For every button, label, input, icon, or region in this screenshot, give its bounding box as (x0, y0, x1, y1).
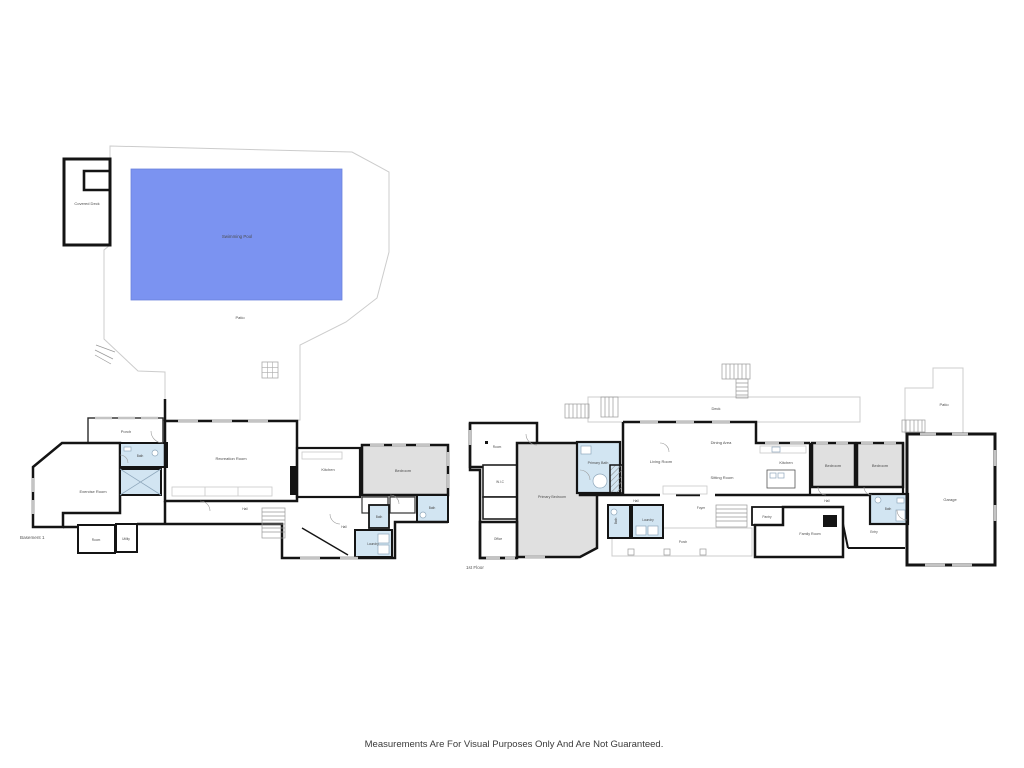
room-ff-label: Room (493, 445, 502, 449)
kitchen-ff-label: Kitchen (779, 460, 792, 465)
kitchen-fixtures-ff (760, 446, 806, 488)
basement-plan: Porch Bath Exercise Room Recreation Room… (20, 399, 448, 558)
foyer-label: Foyer (697, 506, 706, 510)
room-exercise (33, 443, 120, 527)
recreation-builtin (172, 487, 272, 496)
foyer-stairs (716, 505, 747, 527)
porch-label: Porch (121, 429, 131, 434)
living-room-label: Living Room (650, 459, 673, 464)
patio-label: Patio (235, 315, 245, 320)
kitchen-basement-label: Kitchen (321, 467, 334, 472)
bath-basement-label: Bath (137, 454, 144, 458)
room-bath-basement (120, 443, 167, 467)
sitting-room-label: Sitting Room (711, 475, 735, 480)
deck-label: Deck (711, 406, 720, 411)
deck-stairs (565, 364, 750, 418)
entry-walls (843, 524, 905, 548)
wic-label: W.I.C (496, 480, 504, 484)
first-floor-plan: Room W.I.C Primary Bedroom Primary Bath … (466, 364, 995, 570)
hall-basement-label: Hall (242, 507, 248, 511)
stair-diagonal (302, 528, 348, 555)
primary-bath-label: Primary Bath (588, 461, 609, 465)
exercise-room-label: Exercise Room (79, 489, 107, 494)
dining-area-label: Dining Area (711, 440, 732, 445)
kitchen-counter-basement (302, 452, 342, 459)
disclaimer-text: Measurements Are For Visual Purposes Onl… (365, 739, 664, 750)
family-room-label: Family Room (799, 532, 820, 536)
bedroom-basement-label: Bedroom (395, 468, 412, 473)
swimming-pool-label: Swimming Pool (222, 234, 252, 239)
toilet-ff (611, 509, 617, 515)
stair-block (823, 515, 837, 527)
closet-b (390, 497, 415, 513)
laundry-ff-label: Laundry (642, 518, 654, 522)
bath-ff-label: Bath (885, 507, 892, 511)
hatched-closet (610, 465, 623, 493)
skylight (262, 362, 278, 378)
floor-plan-drawing: Covered Deck Swimming Pool Patio (0, 0, 1024, 768)
deck-outline (588, 397, 860, 422)
first-floor-caption: 1st Floor (466, 565, 484, 570)
bath3-basement-label: Bath (376, 515, 383, 519)
bath2-basement-label: Bath (429, 506, 436, 510)
basement-caption: Basement 1 (20, 535, 45, 540)
toilet (420, 512, 426, 518)
patio-ff-label: Patio (939, 402, 949, 407)
bath2-ff-label: Bath (614, 517, 618, 524)
floor-plan-page: Covered Deck Swimming Pool Patio (0, 0, 1024, 768)
porch-columns (628, 549, 706, 555)
patio-stairs (95, 345, 115, 364)
living-builtin (663, 486, 707, 494)
utility-label: Utility (122, 537, 130, 541)
hall-ff-label: Hall (824, 499, 830, 503)
room-bath2-ff (608, 505, 630, 538)
primary-bedroom-label: Primary Bedroom (538, 495, 566, 499)
hall2-ff-label: Hall (633, 499, 639, 503)
recreation-room-label: Recreation Room (215, 456, 247, 461)
fireplace (290, 466, 298, 495)
post (485, 441, 488, 444)
pantry-label: Pantry (762, 515, 772, 519)
hall2-basement-label: Hall (341, 525, 347, 529)
entry-label: Entry (870, 530, 878, 534)
laundry-basement-label: Laundry (367, 542, 379, 546)
closet-ff (483, 497, 517, 519)
porch-ff-label: Porch (679, 540, 688, 544)
bedroom2-ff-label: Bedroom (872, 463, 889, 468)
room-basement-label: Room (92, 538, 101, 542)
office-label: Office (494, 537, 502, 541)
covered-deck-label: Covered Deck (74, 201, 99, 206)
garage-label: Garage (943, 497, 957, 502)
pool-patio-area: Covered Deck Swimming Pool Patio (64, 146, 389, 420)
bedroom1-ff-label: Bedroom (825, 463, 842, 468)
